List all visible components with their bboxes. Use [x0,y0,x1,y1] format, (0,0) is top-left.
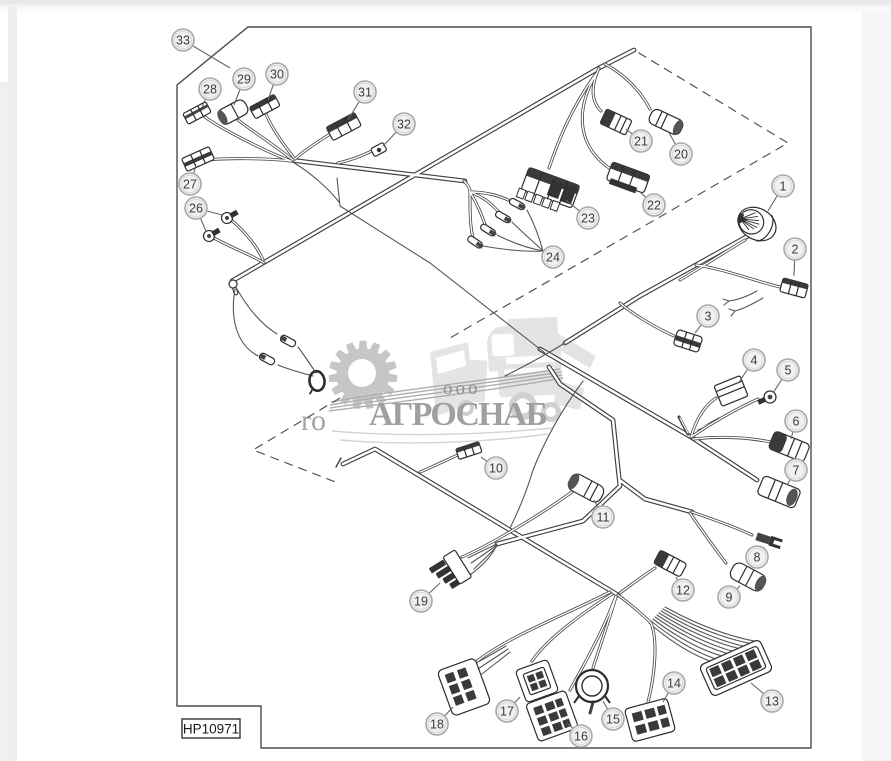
svg-text:6: 6 [793,414,800,428]
svg-text:HP10971: HP10971 [183,722,239,737]
svg-text:30: 30 [270,67,284,81]
svg-text:20: 20 [674,147,688,161]
svg-text:28: 28 [203,82,217,96]
svg-text:10: 10 [489,461,503,475]
svg-text:13: 13 [765,694,779,708]
svg-text:11: 11 [597,510,610,524]
svg-text:15: 15 [606,712,620,726]
svg-text:27: 27 [183,177,197,191]
svg-text:1: 1 [780,179,787,193]
svg-text:5: 5 [785,363,792,377]
svg-text:19: 19 [414,594,428,608]
svg-text:3: 3 [705,309,712,323]
svg-text:26: 26 [189,201,203,215]
svg-text:21: 21 [634,134,648,148]
svg-text:17: 17 [500,704,514,718]
svg-text:31: 31 [358,85,372,99]
svg-text:14: 14 [667,676,681,690]
svg-text:29: 29 [237,72,251,86]
svg-text:8: 8 [754,550,761,564]
svg-text:АГРОСНАБ: АГРОСНАБ [369,396,548,433]
svg-text:12: 12 [676,583,690,597]
svg-text:9: 9 [726,590,733,604]
svg-text:33: 33 [176,33,190,47]
svg-text:32: 32 [397,117,411,131]
svg-text:23: 23 [581,211,595,225]
svg-text:18: 18 [430,717,444,731]
svg-text:2: 2 [792,242,799,256]
svg-text:4: 4 [751,353,758,367]
svg-text:22: 22 [647,198,661,212]
svg-text:16: 16 [574,729,588,743]
svg-text:7: 7 [793,463,800,477]
svg-text:24: 24 [546,250,560,264]
